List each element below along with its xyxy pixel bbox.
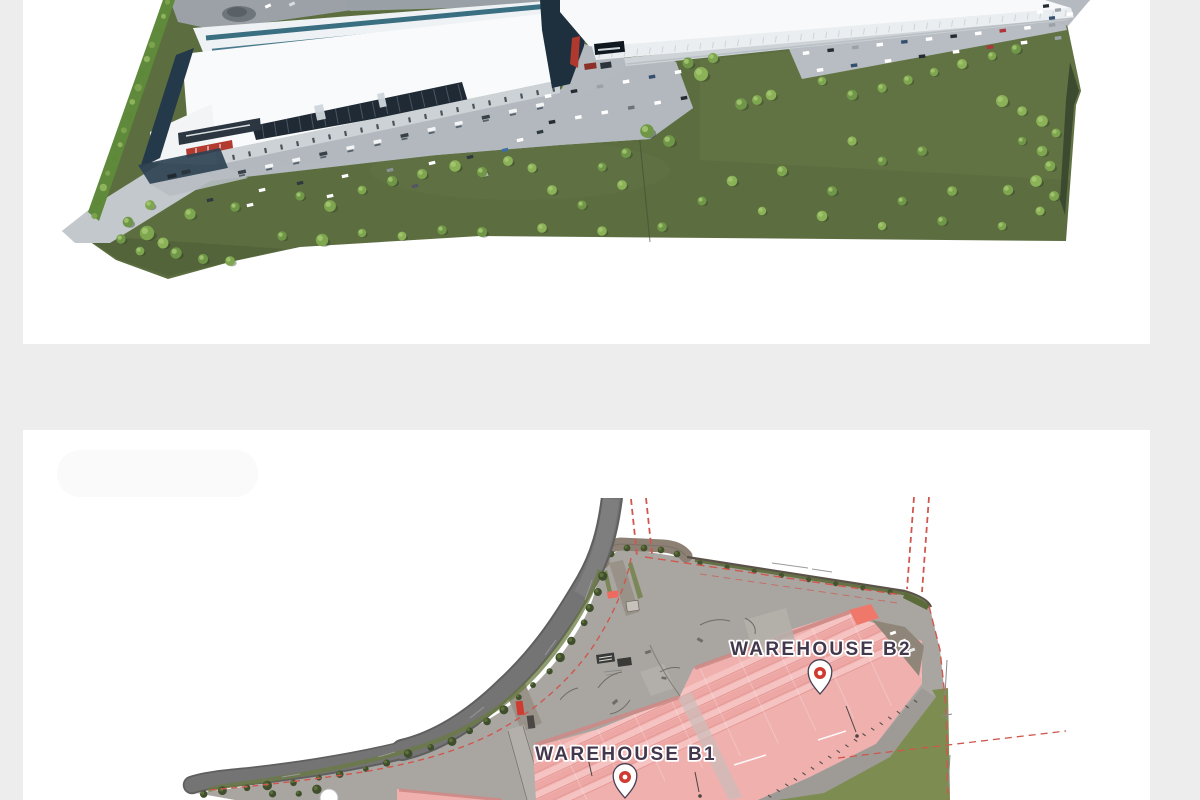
svg-text:WAREHOUSE B2: WAREHOUSE B2 (730, 639, 912, 660)
svg-text:WAREHOUSE B1: WAREHOUSE B1 (535, 744, 717, 765)
